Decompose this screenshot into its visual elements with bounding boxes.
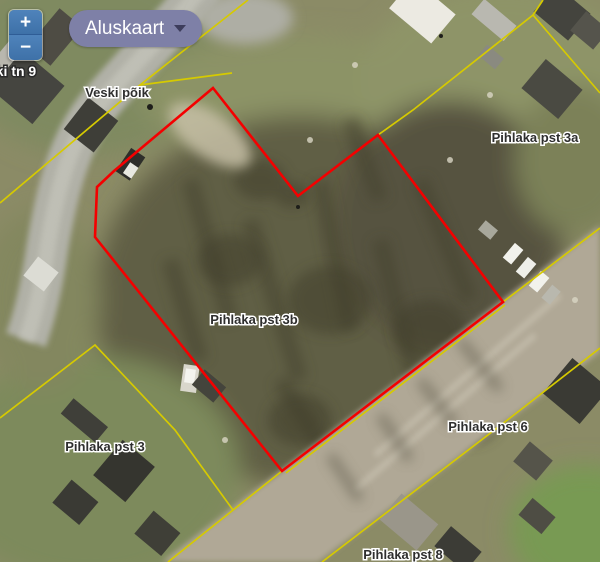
map-viewport[interactable]: ki tn 9Veski põikPihlaka pst 3aPihlaka p…	[0, 0, 600, 562]
chevron-down-icon	[174, 25, 186, 32]
zoom-control: + −	[8, 9, 43, 61]
map-label-pihlaka-pst-3b: Pihlaka pst 3b	[210, 312, 297, 327]
basemap-dropdown-button[interactable]: Aluskaart	[69, 10, 202, 47]
map-label-pihlaka-pst-8: Pihlaka pst 8	[363, 547, 442, 562]
zoom-in-button[interactable]: +	[9, 10, 42, 35]
map-label-veski-p-ik: Veski põik	[85, 85, 149, 100]
map-label-ki-tn-9: ki tn 9	[0, 63, 36, 79]
aerial-basemap[interactable]: ki tn 9Veski põikPihlaka pst 3aPihlaka p…	[0, 0, 600, 562]
map-label-pihlaka-pst-3a: Pihlaka pst 3a	[492, 130, 579, 145]
map-label-pihlaka-pst-6: Pihlaka pst 6	[448, 419, 527, 434]
zoom-out-button[interactable]: −	[9, 35, 42, 60]
map-label-pihlaka-pst-3: Pihlaka pst 3	[65, 439, 144, 454]
basemap-button-label: Aluskaart	[85, 18, 164, 40]
